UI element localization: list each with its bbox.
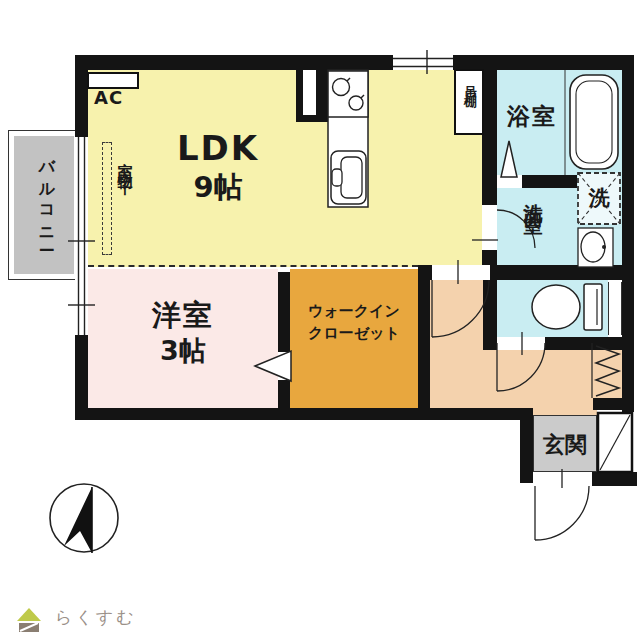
hallway-door-arc: [432, 280, 489, 337]
bathroom-door: [501, 141, 517, 177]
ac-label: AC: [94, 87, 123, 108]
north-arrow-icon: [50, 484, 118, 553]
ldk-label: LDK: [148, 128, 288, 168]
front-door-arc: [535, 486, 589, 540]
laundry-label: 洗: [578, 184, 620, 212]
toilet: [532, 284, 602, 330]
house-icon: [17, 608, 41, 632]
ac-unit: [88, 73, 138, 88]
washroom-door-arc: [497, 210, 535, 248]
bathroom-label: 浴室: [484, 101, 580, 132]
entrance-label: 玄関: [533, 430, 597, 460]
indoor-drying-label: 室内物干: [115, 150, 134, 174]
folding-door-icon: [592, 343, 619, 398]
ldk-size: 9帖: [148, 168, 288, 208]
washbasin: [578, 228, 613, 267]
door-arcs: [432, 210, 589, 540]
hanging-cupboard-label: 吊戸棚: [461, 76, 479, 88]
kitchen-counter: [328, 70, 368, 207]
wic-label-line1: ウォークイン: [292, 302, 416, 321]
bedroom-label: 洋室: [113, 296, 253, 336]
toilet-door-arc: [497, 343, 545, 391]
washroom-label: 洗面室: [521, 188, 547, 206]
kitchen-sink: [331, 151, 366, 204]
shoe-cabinet: [598, 413, 632, 472]
stove: [328, 71, 368, 117]
balcony-label: バルコニー: [36, 148, 57, 246]
brand-logo-text: らくすむ: [55, 606, 137, 629]
floor-plan: LDK 9帖 洋室 3帖 ウォークイン クローゼット バルコニー 浴室 洗面室 …: [0, 0, 640, 640]
wic-label-line2: クローゼット: [292, 324, 416, 343]
closet-opening-arrow: [255, 351, 291, 381]
bedroom-size: 3帖: [113, 333, 253, 369]
